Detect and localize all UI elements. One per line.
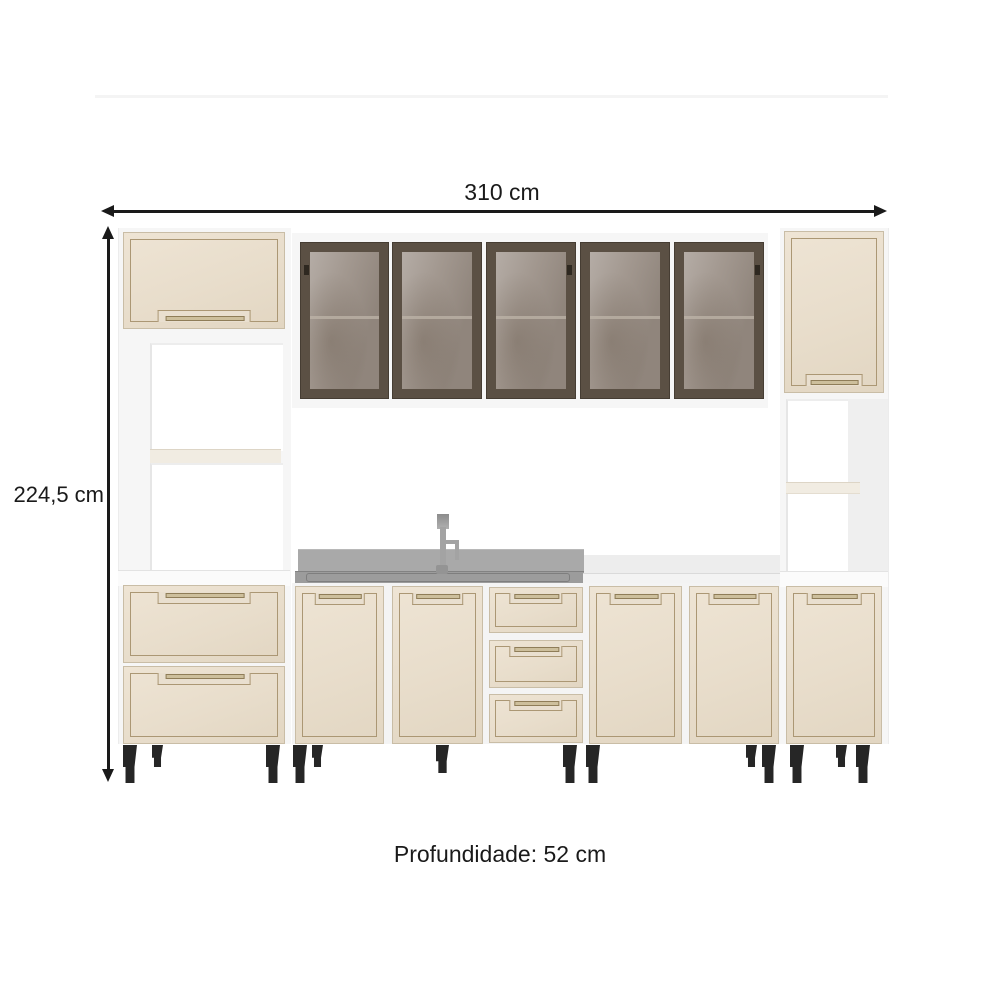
door-trim-line — [302, 593, 377, 737]
door-handle — [158, 310, 251, 322]
door-trim-line — [791, 238, 877, 386]
glass-pane — [402, 252, 472, 389]
door-trim-line — [793, 593, 875, 737]
glass-pane — [590, 252, 660, 389]
base-door-1 — [295, 586, 384, 744]
glass-shelf-line — [590, 316, 660, 319]
left-tower-flip-door — [123, 232, 285, 329]
product-dimension-diagram: 310 cm 224,5 cm Profundidade: 52 cm — [0, 0, 1000, 1000]
glass-door-knob — [567, 265, 572, 275]
door-handle — [708, 593, 759, 605]
door-handle — [609, 593, 662, 605]
glass-door-1 — [300, 242, 389, 399]
door-handle — [412, 593, 464, 605]
depth-dimension-label: Profundidade: 52 cm — [350, 841, 650, 868]
cabinet-leg — [152, 745, 163, 767]
drawer-handle — [509, 700, 562, 711]
height-dimension-label: 224,5 cm — [4, 482, 104, 508]
left-tower-drawer-1 — [123, 585, 285, 663]
faint-wall-line — [95, 95, 888, 98]
cabinet-leg — [266, 745, 280, 783]
glass-door-knob — [304, 265, 309, 275]
glass-pane — [310, 252, 379, 389]
base-drawer-2 — [489, 640, 583, 688]
base-door-2 — [392, 586, 483, 744]
base-door-4 — [689, 586, 779, 744]
glass-shelf-line — [496, 316, 566, 319]
base-door-3 — [589, 586, 682, 744]
glass-shelf-line — [684, 316, 754, 319]
cabinet-leg — [790, 745, 804, 783]
cabinet-leg — [836, 745, 847, 767]
glass-shelf-line — [402, 316, 472, 319]
sink-rim — [306, 573, 570, 582]
glass-door-4 — [580, 242, 670, 399]
right-tower-top-door — [784, 231, 884, 393]
cabinet-leg — [856, 745, 870, 783]
glass-shelf-line — [310, 316, 379, 319]
width-dimension-label: 310 cm — [402, 179, 602, 206]
cabinet-leg — [563, 745, 577, 783]
glass-door-2 — [392, 242, 482, 399]
right-tower-base-door — [786, 586, 882, 744]
glass-pane — [684, 252, 754, 389]
drawer-handle — [158, 673, 251, 685]
glass-door-knob — [755, 265, 760, 275]
glass-pane — [496, 252, 566, 389]
door-handle — [807, 593, 862, 605]
cabinet-leg — [123, 745, 137, 783]
cabinet-leg — [762, 745, 776, 783]
drawer-handle — [509, 593, 562, 604]
cabinet-leg — [746, 745, 757, 767]
faucet-base — [436, 565, 448, 574]
cabinet-leg — [586, 745, 600, 783]
door-trim-line — [399, 593, 476, 737]
right-tower-shelf — [786, 482, 860, 494]
base-drawer-1 — [489, 587, 583, 633]
cabinet-leg — [436, 745, 449, 773]
left-tower-open-niche-upper — [150, 343, 283, 451]
glass-door-5 — [674, 242, 764, 399]
base-drawer-3 — [489, 694, 583, 743]
width-dimension-arrow — [101, 205, 887, 218]
right-tower-worktop — [780, 571, 888, 587]
height-dimension-arrow — [102, 226, 115, 782]
faucet-pipe — [440, 527, 446, 568]
door-trim-line — [596, 593, 675, 737]
white-countertop-backsplash — [584, 555, 780, 573]
drawer-handle — [158, 592, 251, 604]
left-tower-worktop — [118, 570, 290, 586]
faucet-spout-down — [455, 543, 459, 560]
drawer-handle — [509, 646, 562, 657]
door-trim-line — [696, 593, 772, 737]
glass-door-3 — [486, 242, 576, 399]
door-handle — [314, 593, 364, 605]
door-handle — [806, 374, 863, 386]
cabinet-leg — [293, 745, 307, 783]
cabinet-leg — [312, 745, 323, 767]
left-tower-drawer-2 — [123, 666, 285, 744]
left-tower-open-niche-lower — [150, 463, 283, 573]
